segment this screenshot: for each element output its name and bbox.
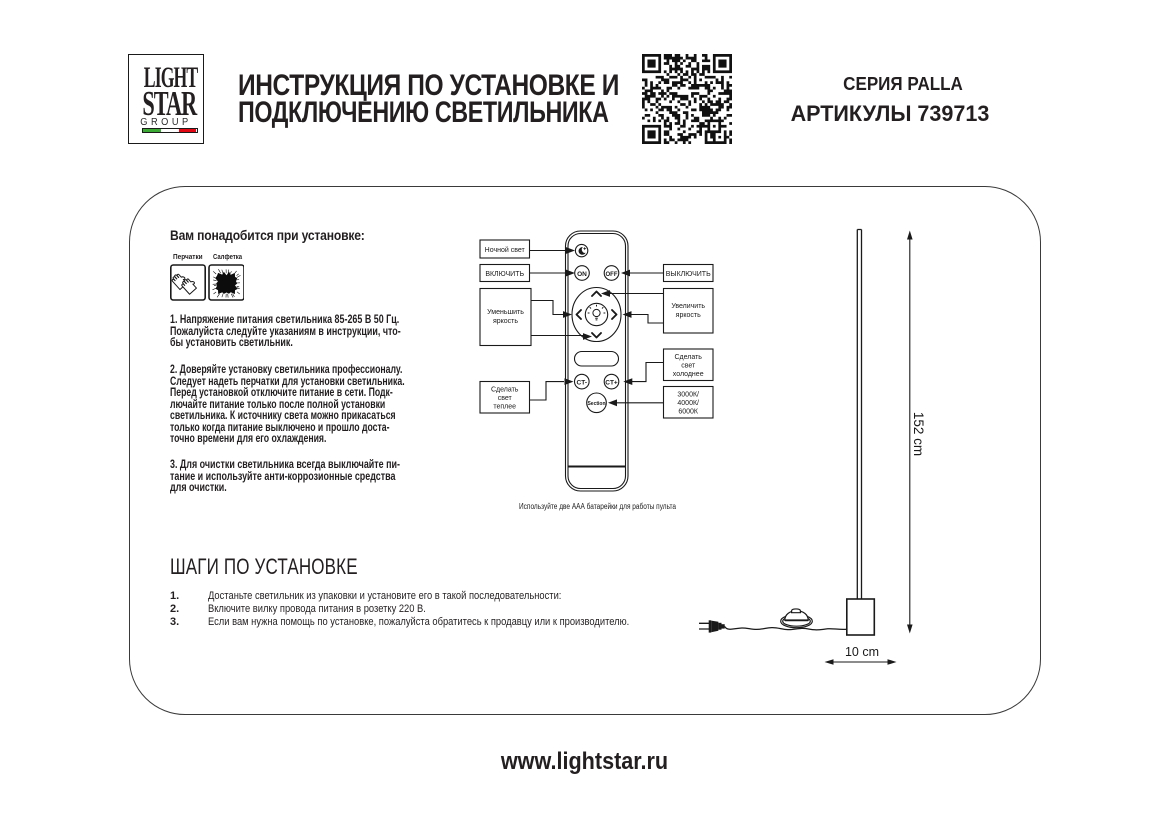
svg-text:ON: ON (577, 271, 587, 278)
svg-text:Уменьшить: Уменьшить (487, 309, 524, 316)
svg-text:152 cm: 152 cm (911, 412, 926, 456)
svg-text:Section: Section (587, 401, 605, 407)
svg-text:6000К: 6000К (678, 409, 699, 416)
svg-text:свет: свет (498, 395, 513, 402)
svg-text:Используйте две ААА батарейки: Используйте две ААА батарейки для работы… (519, 502, 676, 511)
svg-text:холоднее: холоднее (673, 371, 704, 378)
svg-text:свет: свет (681, 363, 696, 370)
svg-text:CT+: CT+ (605, 380, 618, 387)
svg-text:OFF: OFF (606, 272, 618, 278)
svg-text:яркость: яркость (676, 312, 701, 319)
svg-text:ВКЛЮЧИТЬ: ВКЛЮЧИТЬ (485, 271, 524, 278)
svg-text:10 cm: 10 cm (845, 645, 879, 659)
svg-text:Сделать: Сделать (674, 354, 702, 361)
svg-text:яркость: яркость (493, 318, 518, 325)
svg-text:теплее: теплее (493, 404, 516, 411)
svg-text:3000К/: 3000К/ (677, 392, 699, 399)
svg-text:ВЫКЛЮЧИТЬ: ВЫКЛЮЧИТЬ (666, 271, 711, 278)
svg-text:4000К/: 4000К/ (677, 400, 699, 407)
svg-text:Ночной свет: Ночной свет (485, 246, 526, 254)
svg-text:Увеличить: Увеличить (671, 303, 705, 310)
svg-text:CT-: CT- (577, 380, 587, 387)
svg-text:Сделать: Сделать (491, 387, 519, 394)
